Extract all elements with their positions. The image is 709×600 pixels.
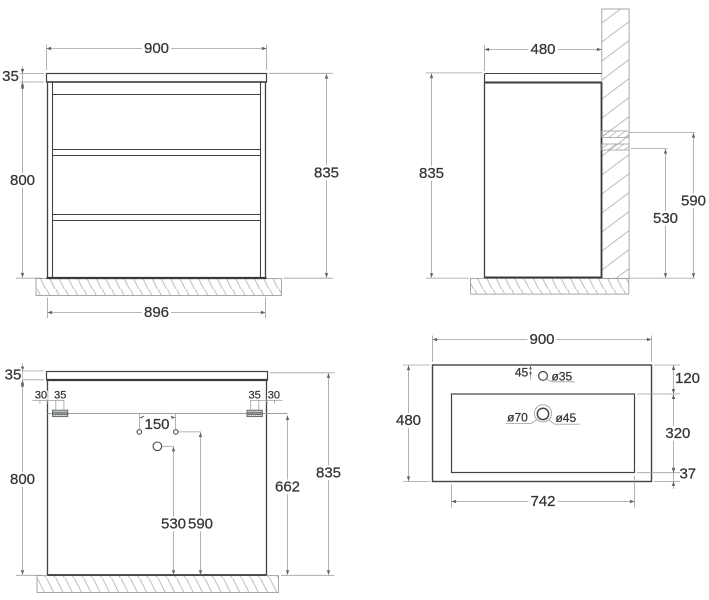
svg-text:120: 120	[675, 370, 700, 387]
svg-text:ø35: ø35	[551, 369, 572, 383]
svg-text:37: 37	[679, 466, 696, 483]
svg-text:35: 35	[2, 68, 19, 85]
svg-text:320: 320	[665, 425, 690, 442]
svg-text:30: 30	[268, 389, 280, 401]
svg-text:480: 480	[530, 41, 555, 58]
svg-text:ø70: ø70	[507, 410, 528, 424]
svg-text:900: 900	[144, 40, 169, 57]
svg-text:530: 530	[161, 515, 186, 532]
svg-text:480: 480	[396, 412, 421, 429]
svg-text:30: 30	[35, 389, 47, 401]
svg-text:590: 590	[188, 515, 213, 532]
svg-text:35: 35	[248, 389, 260, 401]
svg-text:662: 662	[275, 478, 300, 495]
svg-text:742: 742	[530, 493, 555, 510]
svg-text:900: 900	[529, 331, 554, 348]
svg-text:35: 35	[54, 389, 66, 401]
svg-text:150: 150	[144, 416, 169, 433]
svg-text:45: 45	[515, 365, 529, 379]
svg-text:800: 800	[10, 471, 35, 488]
svg-text:800: 800	[10, 172, 35, 189]
svg-text:835: 835	[314, 164, 339, 181]
svg-text:ø45: ø45	[555, 411, 576, 425]
svg-text:835: 835	[316, 464, 341, 481]
svg-text:835: 835	[419, 165, 444, 182]
svg-text:35: 35	[5, 366, 22, 383]
svg-text:530: 530	[653, 210, 678, 227]
svg-text:590: 590	[681, 192, 706, 209]
svg-text:896: 896	[144, 304, 169, 321]
